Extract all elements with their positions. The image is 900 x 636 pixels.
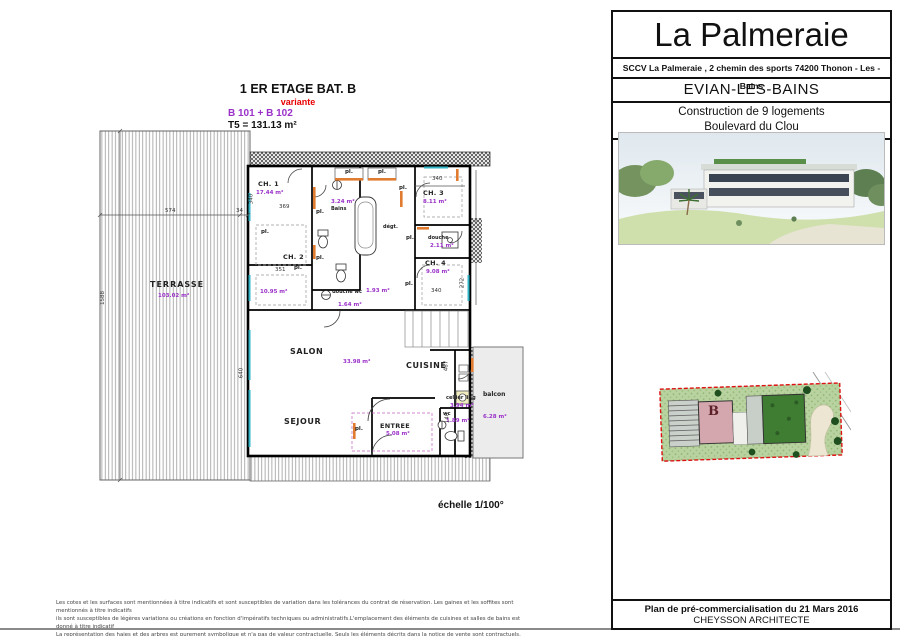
plan-title-block: 1 ER ETAGE BAT. B variante B 101 + B 102… <box>228 82 368 131</box>
dim-ch1-w: 369 <box>279 204 290 210</box>
terrace-hatch <box>100 131 250 480</box>
room-sejour: SEJOUR <box>284 417 321 426</box>
balcony-floor <box>473 347 523 458</box>
company-address: SCCV La Palmeraie , 2 chemin des sports … <box>613 59 890 79</box>
footer-architect: CHEYSSON ARCHITECTE <box>613 615 890 626</box>
dim-ch3-w: 340 <box>432 176 443 182</box>
sheet: 1 ER ETAGE BAT. B variante B 101 + B 102… <box>0 0 900 636</box>
dim-terrasse-w: 574 <box>165 208 176 214</box>
plan-variant: variante <box>228 97 368 107</box>
project-title: La Palmeraie <box>613 12 890 59</box>
city-name: EVIAN-LES-BAINS <box>613 79 890 103</box>
disclaimer-line1: Les cotes et les surfaces sont mentionné… <box>56 599 534 615</box>
room-douche: douche <box>428 235 449 241</box>
room-bains: Bains <box>331 206 346 212</box>
dim-cuisine-h: 487 <box>443 361 449 372</box>
room-ch2: CH. 2 <box>283 253 304 261</box>
bathtub-icon <box>355 197 376 255</box>
disclaimer-line3: La représentation des haies et des arbre… <box>56 631 534 636</box>
area-ch1: 17.44 m² <box>256 190 283 196</box>
closet-label: pl. <box>261 229 269 235</box>
dim-terrasse-gap: 34 <box>236 208 243 214</box>
room-ch4: CH. 4 <box>425 259 446 267</box>
room-entree: ENTREE <box>380 422 410 430</box>
dim-salon-h: 640 <box>238 368 244 379</box>
area-sejour: 33.98 m² <box>343 359 370 365</box>
floor-plan-drawing <box>90 125 535 485</box>
area-entree: 5.08 m² <box>386 431 410 437</box>
area-ch2: 10.95 m² <box>260 289 287 295</box>
parapet-top <box>250 152 490 166</box>
plan-title: 1 ER ETAGE BAT. B <box>228 82 368 96</box>
closet-label: pl. <box>399 185 407 191</box>
site-building-label: B <box>708 404 719 419</box>
closet-label: pl. <box>405 281 413 287</box>
building-render-svg <box>619 133 884 244</box>
footer-plan-date: Plan de pré-commercialisation du 21 Mars… <box>613 604 890 615</box>
dim-terrasse-h: 1588 <box>100 291 106 305</box>
title-block-footer: Plan de pré-commercialisation du 21 Mars… <box>613 599 890 628</box>
terrace-hatch-bottom <box>250 456 490 481</box>
program-line: Construction de 9 logements <box>613 105 890 120</box>
area-balcon: 6.28 m² <box>483 414 507 420</box>
dim-ch4-w: 340 <box>431 288 442 294</box>
room-cuisine: CUISINE <box>406 361 446 370</box>
dim-ch1-h: 340 <box>248 194 254 205</box>
dim-ch4-h: 272 <box>459 278 465 289</box>
room-balcon: balcon <box>483 391 505 398</box>
room-ch3: CH. 3 <box>423 189 444 197</box>
area-bains: 3.24 m² <box>331 199 355 205</box>
closet-label: pl. <box>294 265 302 271</box>
building-render <box>618 132 885 245</box>
area-terrasse: 103.02 m² <box>158 293 189 299</box>
closet-label: pl. <box>355 426 363 432</box>
room-degagement: dégt. <box>383 224 398 230</box>
plan-lots: B 101 + B 102 <box>228 108 368 119</box>
room-cellier: cellier ling <box>446 395 476 401</box>
closet-label: pl. <box>378 169 386 175</box>
area-degagement: 1.93 m² <box>366 288 390 294</box>
site-plan-svg <box>655 372 851 472</box>
room-douche-wc: douche wc <box>330 289 364 295</box>
dim-ch2-w: 351 <box>275 267 286 273</box>
parapet-right <box>470 218 482 263</box>
area-ch3: 8.11 m² <box>423 199 447 205</box>
closet-label: pl. <box>316 209 324 215</box>
disclaimer: Les cotes et les surfaces sont mentionné… <box>56 599 534 636</box>
area-douche-wc: 1.64 m² <box>338 302 362 308</box>
title-block-panel: La Palmeraie SCCV La Palmeraie , 2 chemi… <box>611 10 892 630</box>
closet-label: pl. <box>406 235 414 241</box>
room-ch1: CH. 1 <box>258 180 279 188</box>
area-douche: 2.11 m² <box>430 243 454 249</box>
closet-label: pl. <box>345 169 353 175</box>
site-plan: B <box>655 372 851 472</box>
dim-wc-h: 140 <box>444 413 450 424</box>
room-salon: SALON <box>290 347 323 356</box>
area-ch4: 9.08 m² <box>426 269 450 275</box>
room-terrasse: TERRASSE <box>150 280 204 289</box>
area-cellier: 3.94 m² <box>450 403 474 409</box>
scale-label: échelle 1/100° <box>438 500 504 511</box>
closet-label: pl. <box>316 255 324 261</box>
